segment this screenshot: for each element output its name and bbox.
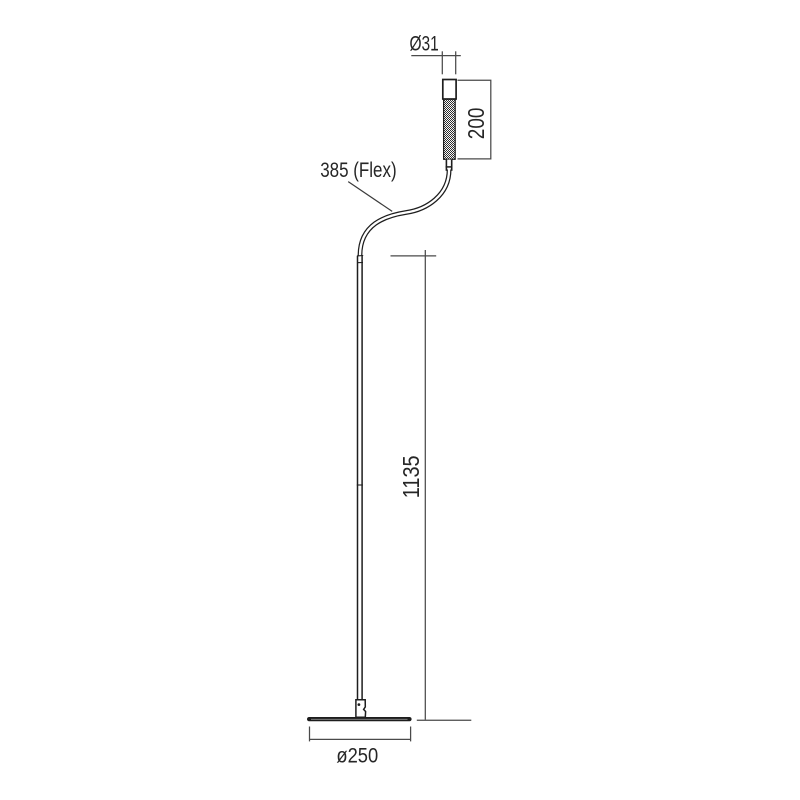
svg-text:200: 200 bbox=[463, 108, 489, 140]
svg-text:385 (Flex): 385 (Flex) bbox=[320, 159, 396, 182]
svg-text:Ø31: Ø31 bbox=[410, 32, 439, 55]
svg-text:1135: 1135 bbox=[398, 455, 424, 498]
svg-text:ø250: ø250 bbox=[336, 745, 378, 768]
